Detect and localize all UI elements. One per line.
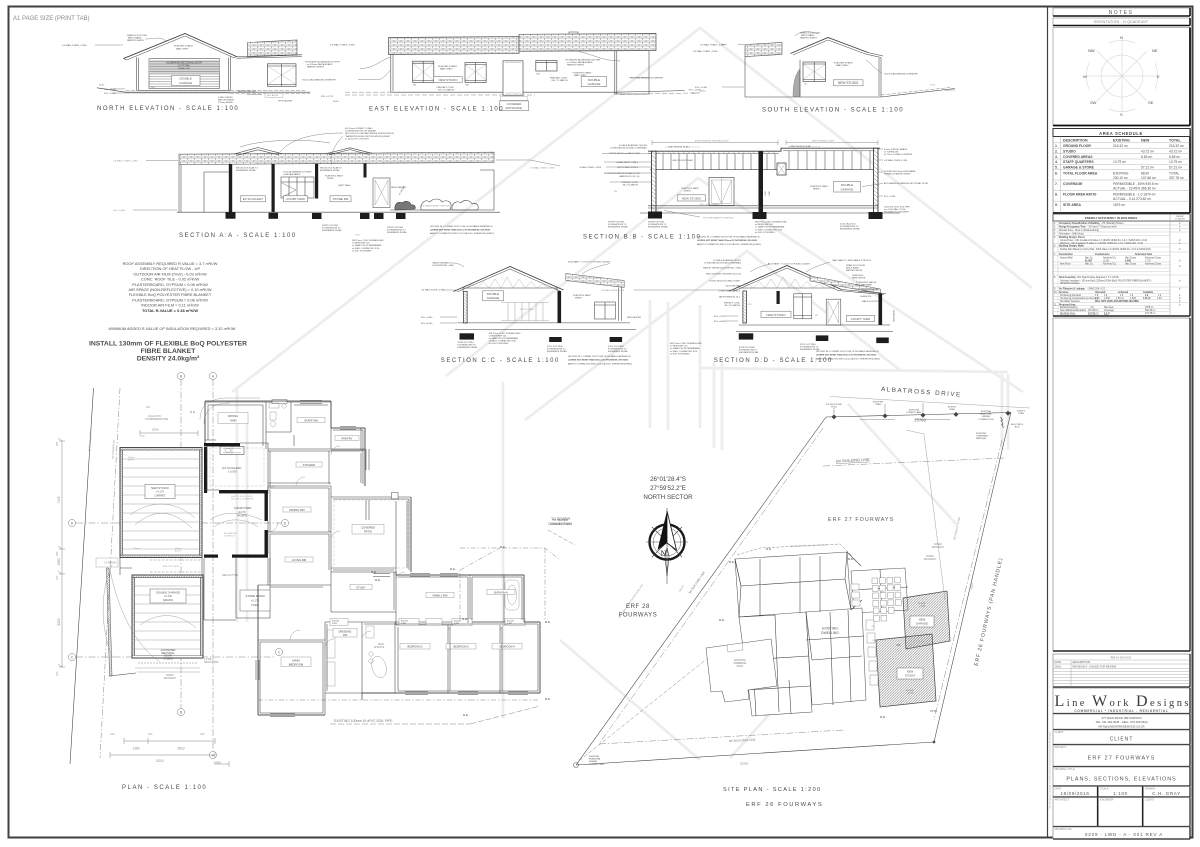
svg-text:6210: 6210 xyxy=(156,759,163,763)
svg-text:POOL: POOL xyxy=(737,665,744,668)
svg-text:17.6 LANDSCAPED CONTOUR: 17.6 LANDSCAPED CONTOUR xyxy=(420,205,450,208)
svg-text:1879 m²: 1879 m² xyxy=(1113,203,1126,207)
svg-text:F.F.L +0.170: F.F.L +0.170 xyxy=(714,316,726,318)
svg-text:FOUNDATIONS TO: FOUNDATIONS TO xyxy=(387,229,406,232)
svg-text:Achieved Cu: Achieved Cu xyxy=(1103,263,1117,266)
svg-text:220: 220 xyxy=(110,732,115,736)
svg-text:BRICK BAND: BRICK BAND xyxy=(846,267,859,270)
svg-text:Available: Available xyxy=(1143,291,1154,294)
svg-text:273.78 m²: 273.78 m² xyxy=(1145,312,1156,315)
svg-text:13.79 m²: 13.79 m² xyxy=(1169,160,1183,164)
svg-text:PATIO: PATIO xyxy=(364,530,373,534)
svg-text:FOURWAYS: FOURWAYS xyxy=(619,613,658,619)
svg-text:DRAWING NO.: DRAWING NO. xyxy=(1055,827,1073,831)
svg-text:PROJECT: PROJECT xyxy=(1055,745,1068,749)
svg-text:YARD: YARD xyxy=(229,418,236,422)
svg-text:- 16 Hours / 7 Days per week: - 16 Hours / 7 Days per week xyxy=(1087,226,1118,229)
svg-text:SITE AREA: SITE AREA xyxy=(1063,203,1082,207)
svg-text:RECYCLED TO IMPLANT/SMOKE SPEC: RECYCLED TO IMPLANT/SMOKE SPECIFICATION xyxy=(345,132,394,135)
svg-text:min I-1/40 FALL TO BE: min I-1/40 FALL TO BE xyxy=(884,208,906,211)
svg-text:C.H. GRAY: C.H. GRAY xyxy=(1152,791,1181,796)
svg-text:Hot Energy Consumption per Ann: Hot Energy Consumption per Annum xyxy=(1060,297,1097,300)
svg-text:ENGINEERS DETAIL: ENGINEERS DETAIL xyxy=(236,169,257,172)
svg-text:on 228mm FACIA BOARD: on 228mm FACIA BOARD xyxy=(567,61,593,64)
svg-text:ENGINEERS DETAIL: ENGINEERS DETAIL xyxy=(322,229,343,232)
svg-text:PERMISSIBLE - 50% 939.5 m²: PERMISSIBLE - 50% 939.5 m² xyxy=(1113,182,1159,186)
svg-text:Max Cu: Max Cu xyxy=(1085,264,1094,266)
svg-text:EXISTING: EXISTING xyxy=(822,627,838,631)
svg-text:(1.35): (1.35) xyxy=(1103,261,1109,263)
svg-text:CHARCOAL: CHARCOAL xyxy=(178,67,191,70)
svg-text:RIB 75mm CONC SURFACE BED: RIB 75mm CONC SURFACE BED xyxy=(670,342,702,345)
svg-text:EXIST'G CARS: EXIST'G CARS xyxy=(520,308,534,311)
svg-text:DATE: DATE xyxy=(1055,660,1062,664)
svg-text:43.72 m²: 43.72 m² xyxy=(1141,149,1155,153)
svg-text:PAINTED WHITE: PAINTED WHITE xyxy=(567,64,585,67)
svg-text:ERF 27 FOURWAYS: ERF 27 FOURWAYS xyxy=(828,517,894,523)
svg-text:DENSITY 24.0kg/m²: DENSITY 24.0kg/m² xyxy=(137,356,200,363)
svg-text:ENCASED IN CONCRETE: ENCASED IN CONCRETE xyxy=(884,211,910,214)
svg-text:1879 m²: 1879 m² xyxy=(1145,306,1154,309)
svg-text:280: 280 xyxy=(55,551,59,556)
svg-text:PLASTER & PAINT: PLASTER & PAINT xyxy=(174,45,194,48)
svg-text:R.E.: R.E. xyxy=(450,567,456,571)
svg-text:- Min Total R-Value Required =: - Min Total R-Value Required = 3.7 m²K/W xyxy=(1076,276,1120,279)
svg-text:REVISIONS: REVISIONS xyxy=(1111,656,1132,660)
svg-text:W: W xyxy=(1083,74,1087,79)
svg-text:ENGINEERS DETAIL: ENGINEERS DETAIL xyxy=(608,350,629,353)
svg-text:EXTRUDED ALUMINIUM GUTTER: EXTRUDED ALUMINIUM GUTTER xyxy=(305,61,340,64)
svg-text:ORIENTATION - N QUADRANT: ORIENTATION - N QUADRANT xyxy=(1094,20,1149,24)
svg-text:EXISTING: EXISTING xyxy=(1113,139,1130,143)
svg-text:NEW GUTTER: NEW GUTTER xyxy=(222,574,238,577)
svg-text:SECTION C:C - SCALE 1:100: SECTION C:C - SCALE 1:100 xyxy=(441,358,560,364)
svg-text:Allocated: Allocated xyxy=(1095,291,1106,294)
svg-text:Hot Water Services: Hot Water Services xyxy=(1060,300,1081,303)
svg-text:STAFF QUARTERS: STAFF QUARTERS xyxy=(1063,160,1094,164)
svg-text:366.36 m²: 366.36 m² xyxy=(1145,309,1156,312)
svg-text:CLIENT: CLIENT xyxy=(1055,730,1065,734)
svg-text:STUDIO: STUDIO xyxy=(1063,149,1076,153)
svg-text:PAINTED WHITE: PAINTED WHITE xyxy=(307,66,325,69)
svg-text:L/S WALL PLATE +2.890: L/S WALL PLATE +2.890 xyxy=(530,167,555,170)
svg-text:DRIVEWAY: DRIVEWAY xyxy=(164,677,177,680)
svg-text:3.: 3. xyxy=(1055,155,1058,159)
svg-text:ENTRANCE: ENTRANCE xyxy=(506,106,523,110)
svg-text:N: N xyxy=(661,549,667,558)
svg-text:SILL TO MATCH: SILL TO MATCH xyxy=(551,79,568,82)
svg-text:ENGINEERS DETAIL: ENGINEERS DETAIL xyxy=(320,169,341,172)
svg-text:DRIVEWAY: DRIVEWAY xyxy=(924,558,937,561)
svg-text:FASILEY WEIGH (100 EXISTING +: FASILEY WEIGH (100 EXISTING + MIN) xyxy=(703,267,741,270)
svg-text:STORMWATER PIPE: STORMWATER PIPE xyxy=(145,418,168,421)
svg-text:BATH RM 4: BATH RM 4 xyxy=(494,591,508,594)
svg-text:TILTED 38x114mm WALL PLATE: TILTED 38x114mm WALL PLATE xyxy=(709,280,740,283)
svg-text:BRICK BAND: BRICK BAND xyxy=(128,37,142,40)
svg-text:SCALE: SCALE xyxy=(1100,787,1109,791)
svg-text:3715: 3715 xyxy=(930,709,937,713)
svg-text:R.E.: R.E. xyxy=(463,713,469,717)
svg-text:COURTYARD: COURTYARD xyxy=(286,197,306,201)
svg-text:GROUND FILL COMPACTION TO BE O: GROUND FILL COMPACTION TO BE OF SUITABLE… xyxy=(697,236,760,239)
svg-text:ALLS PAINT 'T' CLICK TOOF SUB: ALLS PAINT 'T' CLICK TOOF SUB & SQUIRT xyxy=(768,263,811,266)
svg-text:OVERHEAD: OVERHEAD xyxy=(976,435,989,438)
svg-text:WIND DUSTING TRUSSES (75x4.75): WIND DUSTING TRUSSES (75x4.75) xyxy=(706,274,741,276)
svg-text:NOTES: NOTES xyxy=(1109,10,1134,16)
svg-text:L/S WALL PLATE +2.890: L/S WALL PLATE +2.890 xyxy=(113,160,138,163)
svg-text:BABY GREY: BABY GREY xyxy=(440,68,453,71)
svg-text:DOUBLE GARAGE: DOUBLE GARAGE xyxy=(156,591,180,595)
svg-text:ERF 28: ERF 28 xyxy=(626,604,650,610)
svg-text:EXTRUDED ALUMINIUM GUTTER: EXTRUDED ALUMINIUM GUTTER xyxy=(566,58,601,61)
svg-text:DESCRIPTION: DESCRIPTION xyxy=(1073,660,1091,664)
svg-text:New Floor: New Floor xyxy=(1060,263,1071,266)
svg-text:52930: 52930 xyxy=(740,762,749,766)
svg-text:7145: 7145 xyxy=(57,496,61,503)
svg-text:27°59'52.2"E: 27°59'52.2"E xyxy=(650,485,686,492)
svg-text:STEEL GATES: STEEL GATES xyxy=(218,96,233,99)
svg-text:SILL TO MATCH: SILL TO MATCH xyxy=(623,184,639,187)
svg-text:MAILS & GUTTER: MAILS & GUTTER xyxy=(862,300,880,303)
svg-text:BUILT-IN CUPB...: BUILT-IN CUPB... xyxy=(163,566,181,568)
svg-text:STORE RM: STORE RM xyxy=(333,197,349,201)
svg-text:GARAGE: GARAGE xyxy=(916,622,928,626)
svg-text:NEW STUDIO: NEW STUDIO xyxy=(838,81,859,85)
svg-text:"WATERPROOFING CERTIFICATE REQ: "WATERPROOFING CERTIFICATE REQUIRED" xyxy=(345,135,391,138)
svg-text:57.21 m²: 57.21 m² xyxy=(1169,166,1183,170)
svg-text:EAST ELEVATION - SCALE 1:100: EAST ELEVATION - SCALE 1:100 xyxy=(369,107,504,113)
svg-text:BOX: BOX xyxy=(1015,427,1020,429)
svg-text:WHITE: WHITE xyxy=(575,298,582,300)
svg-text:Proposed Area: Proposed Area xyxy=(1059,303,1076,306)
svg-text:NEW DP&SB: NEW DP&SB xyxy=(204,661,219,664)
svg-text:NORTH SECTOR: NORTH SECTOR xyxy=(643,494,693,501)
svg-text:GUTTER & DOWNPIPE: GUTTER & DOWNPIPE xyxy=(231,499,254,501)
svg-text:on WELL COMPACTED SOIL: on WELL COMPACTED SOIL xyxy=(755,228,783,231)
svg-text:1.: 1. xyxy=(1055,144,1058,148)
svg-text:TREE: TREE xyxy=(1018,413,1024,415)
svg-text:on 50mm PVC OUTLETS: on 50mm PVC OUTLETS xyxy=(345,138,369,140)
svg-text:RIB 75mm CONC SURFACE BED: RIB 75mm CONC SURFACE BED xyxy=(489,332,521,335)
svg-text:NEW STUDIO: NEW STUDIO xyxy=(438,78,458,82)
svg-text:9.: 9. xyxy=(1055,203,1058,207)
svg-text:ALUMINIUM SECTIONAL DOOR: ALUMINIUM SECTIONAL DOOR xyxy=(166,61,202,64)
svg-text:AASHTO COMPACTED INFILL (150 D: AASHTO COMPACTED INFILL (150 DAG FILL WH… xyxy=(568,362,632,365)
svg-text:1.593: 1.593 xyxy=(1104,298,1110,300)
svg-text:L/S WALL PLATE +2.890: L/S WALL PLATE +2.890 xyxy=(62,44,87,47)
svg-text:SITE PLAN - SCALE 1:200: SITE PLAN - SCALE 1:200 xyxy=(723,787,822,793)
svg-text:Climatic Zone - Zone 2 (Johann: Climatic Zone - Zone 2 (Johannesburg) xyxy=(1059,229,1099,232)
svg-text:w/ 75mm COMES CORNICES: w/ 75mm COMES CORNICES xyxy=(884,154,913,156)
svg-text:50%: 50% xyxy=(1104,315,1109,317)
svg-text:TEL: 011 463-4048 - CELL:: TEL: 011 463-4048 - CELL: 079 493-9614 xyxy=(1095,720,1147,724)
svg-text:4.8: 4.8 xyxy=(896,643,901,647)
svg-text:RM: RM xyxy=(343,634,347,637)
svg-text:Services: Services xyxy=(1059,292,1069,294)
svg-text:337.78 m²: 337.78 m² xyxy=(1088,314,1099,317)
svg-text:6.: 6. xyxy=(1055,172,1058,176)
svg-text:FIBRE BLANKET: FIBRE BLANKET xyxy=(141,348,197,355)
svg-text:- H4 (Dwelling House): - H4 (Dwelling House) xyxy=(1101,223,1124,225)
svg-text:Building Design: Walls: Building Design: Walls xyxy=(1059,246,1085,248)
svg-text:CONNECTION: CONNECTION xyxy=(589,764,604,766)
svg-text:WH PLASTER: WH PLASTER xyxy=(278,100,293,103)
svg-text:F.F.L +2.175: F.F.L +2.175 xyxy=(321,96,334,98)
svg-text:F.F.L +0.000: F.F.L +0.000 xyxy=(104,93,117,95)
svg-text:Solar Heat Gain: Solar Heat Gain xyxy=(1135,253,1153,256)
svg-text:Total Floor Area: Total Floor Area xyxy=(1060,314,1077,317)
svg-text:175mm RISER: 175mm RISER xyxy=(218,102,233,104)
svg-text:75mm Ø ALUMINIUM DOWNPIPE: 75mm Ø ALUMINIUM DOWNPIPE xyxy=(629,77,663,80)
svg-text:WILL NOT HAVE AN EXISTING HEAT: WILL NOT HAVE AN EXISTING HEATING xyxy=(1095,300,1139,303)
svg-text:F.F.L +0.340: F.F.L +0.340 xyxy=(695,87,708,89)
svg-text:50mm GM GAP: 50mm GM GAP xyxy=(725,285,740,288)
svg-text:PERMISSIBLE - 1.0 1879 m²: PERMISSIBLE - 1.0 1879 m² xyxy=(1113,193,1156,197)
svg-text:DRAW SOLUTIONS: DRAW SOLUTIONS xyxy=(127,34,147,37)
svg-text:STREET LAMP: STREET LAMP xyxy=(906,411,922,414)
svg-text:EX SCULLERY: EX SCULLERY xyxy=(223,466,242,470)
svg-text:240: 240 xyxy=(146,406,151,409)
svg-text:NEW: NEW xyxy=(1141,139,1150,143)
svg-text:SILL THE BRAM: SILL THE BRAM xyxy=(856,284,872,287)
svg-text:STUDIO: STUDIO xyxy=(905,674,916,678)
svg-text:R.E.: R.E. xyxy=(719,618,725,622)
svg-text:NEW STUDIO: NEW STUDIO xyxy=(766,313,786,317)
svg-text:CARPET: CARPET xyxy=(154,493,166,497)
svg-text:N.G.L.: N.G.L. xyxy=(333,101,340,103)
svg-text:6210: 6210 xyxy=(57,618,61,625)
svg-text:BABY GREY: BABY GREY xyxy=(176,47,189,50)
svg-text:w/ INSULATION (SOUND & THERMAL: w/ INSULATION (SOUND & THERMAL) xyxy=(610,147,647,150)
svg-text:R.E.: R.E. xyxy=(545,620,551,624)
svg-text:1.737: 1.737 xyxy=(1145,261,1151,263)
svg-text:PLASTER & PAINT: PLASTER & PAINT xyxy=(573,294,592,297)
svg-text:S WALL PLATE +2.890: S WALL PLATE +2.890 xyxy=(580,166,602,169)
svg-text:107.68 m²: 107.68 m² xyxy=(1088,309,1099,312)
svg-text:TOTAL FLOOR AREA: TOTAL FLOOR AREA xyxy=(1063,172,1098,176)
svg-text:DRAWING TITLE: DRAWING TITLE xyxy=(1055,767,1075,771)
svg-text:NEW TRUSSES O-DRY: NEW TRUSSES O-DRY xyxy=(812,141,835,143)
svg-text:216.32 m²: 216.32 m² xyxy=(1169,144,1185,148)
svg-text:F.F.L +0.340 GRANO: F.F.L +0.340 GRANO xyxy=(700,203,720,206)
svg-text:Around Wall: Around Wall xyxy=(1060,257,1073,260)
svg-text:4X45 PAINT 'T' CLICK TOOF SUB: 4X45 PAINT 'T' CLICK TOOF SUB & SQUIRT xyxy=(568,261,611,264)
svg-text:SECTION B:B - SCALE 1:100: SECTION B:B - SCALE 1:100 xyxy=(583,235,701,241)
svg-text:Orientation - Wall Sector: Orientation - Wall Sector xyxy=(1059,233,1084,236)
svg-text:280: 280 xyxy=(55,441,59,446)
svg-text:- SANS 204, 4.2.1: - SANS 204, 4.2.1 xyxy=(1087,288,1106,291)
svg-text:(VERT WALL): (VERT WALL) xyxy=(338,184,351,187)
svg-text:1.59: 1.59 xyxy=(1157,298,1162,300)
svg-text:BABY GREY: BABY GREY xyxy=(574,74,587,77)
svg-text:2200: 2200 xyxy=(213,761,220,765)
svg-text:EXISTING 100mm Ø uPVC SOIL PIP: EXISTING 100mm Ø uPVC SOIL PIPE xyxy=(334,719,393,723)
svg-text:STAFF RM: STAFF RM xyxy=(304,418,318,422)
svg-text:DOWN PIPE: DOWN PIPE xyxy=(892,310,894,323)
svg-text:GRANO: GRANO xyxy=(163,598,174,602)
svg-text:DATE: DATE xyxy=(1055,787,1062,791)
svg-text:L/S WALL PLATE +2.890: L/S WALL PLATE +2.890 xyxy=(693,50,718,53)
svg-text:Achieved Cu: Achieved Cu xyxy=(1103,257,1117,260)
svg-text:SE: SE xyxy=(1148,100,1154,105)
svg-text:ENERGY EFFICIENCY IN BUILDINGS: ENERGY EFFICIENCY IN BUILDINGS xyxy=(1085,216,1137,220)
svg-text:LIVING RM: LIVING RM xyxy=(292,558,307,562)
svg-text:BEDROOM: BEDROOM xyxy=(289,662,304,666)
svg-text:REFINECES MIRROR & RAKE GOOD: REFINECES MIRROR & RAKE GOOD xyxy=(604,172,641,175)
svg-text:400 50mm SCREED TO FALL: 400 50mm SCREED TO FALL xyxy=(345,127,374,130)
svg-text:F.F.L +0.340: F.F.L +0.340 xyxy=(421,317,433,319)
svg-text:DRIVEWAY: DRIVEWAY xyxy=(932,546,945,549)
svg-text:Double Skin Masonry Cavity Wal: Double Skin Masonry Cavity Wall - Fill R… xyxy=(1060,248,1151,251)
svg-text:GARAGE & STORE: GARAGE & STORE xyxy=(1063,166,1095,170)
svg-text:N.G.L.: N.G.L. xyxy=(700,91,707,93)
svg-text:COMMERCIAL * INDUSTRIAL - RESI: COMMERCIAL * INDUSTRIAL - RESIDENTIAL xyxy=(1074,709,1168,713)
svg-text:Max Cmax: Max Cmax xyxy=(1125,264,1137,266)
svg-text:R.E.: R.E. xyxy=(848,557,854,561)
svg-text:1380: 1380 xyxy=(57,558,61,565)
svg-text:HEIGHTS: HEIGHTS xyxy=(944,89,955,92)
svg-text:ENGINEERS DETAIL: ENGINEERS DETAIL xyxy=(547,350,568,353)
svg-text:220: 220 xyxy=(148,732,153,736)
svg-text:ERF 26 FOURWAYS: ERF 26 FOURWAYS xyxy=(746,802,823,808)
svg-text:CONNECTION: CONNECTION xyxy=(979,419,994,421)
svg-text:KITCHEN: KITCHEN xyxy=(303,463,315,467)
svg-text:F.F.L +0.000: F.F.L +0.000 xyxy=(113,210,126,212)
svg-text:A.F.F.L.: A.F.F.L. xyxy=(128,459,135,462)
svg-text:SILL TO MATCH: SILL TO MATCH xyxy=(438,89,455,92)
svg-text:ACTUAL - 0.14 273.82 m²: ACTUAL - 0.14 273.82 m² xyxy=(1113,197,1152,201)
svg-text:R.E.: R.E. xyxy=(190,410,196,414)
svg-text:in FACIA BOARDS: in FACIA BOARDS xyxy=(283,173,301,176)
svg-text:L/S WALL PLATE +2.890: L/S WALL PLATE +2.890 xyxy=(421,289,445,292)
svg-text:MIN PLASTER: MIN PLASTER xyxy=(627,316,641,319)
svg-text:43.72 m²: 43.72 m² xyxy=(1169,149,1183,153)
svg-text:DWELLING: DWELLING xyxy=(821,631,839,635)
svg-text:COVERAGE: COVERAGE xyxy=(1063,182,1083,186)
svg-text:EXIST EXISTING TRUSSES U-DRY: EXIST EXISTING TRUSSES U-DRY xyxy=(695,141,729,143)
svg-text:57.21 m²: 57.21 m² xyxy=(1141,166,1155,170)
svg-text:Achieved Cmax: Achieved Cmax xyxy=(1145,257,1162,260)
svg-text:on DAMP PROOF MEMBRANE: on DAMP PROOF MEMBRANE xyxy=(352,244,382,247)
svg-text:STORE ROOM: STORE ROOM xyxy=(245,594,265,598)
svg-text:Achieved: Achieved xyxy=(1118,291,1129,294)
svg-text:TREE: TREE xyxy=(875,404,881,406)
svg-text:LINE OF EXIST SLAB: LINE OF EXIST SLAB xyxy=(672,159,693,162)
svg-text:50 PINE SW 0.6mm SUB-FRAME: 50 PINE SW 0.6mm SUB-FRAME xyxy=(884,170,916,173)
svg-text:NEW STUDIO: NEW STUDIO xyxy=(151,486,170,490)
svg-text:29/16: 29/16 xyxy=(1055,665,1062,669)
svg-text:R.E.: R.E. xyxy=(462,617,468,621)
svg-text:DINING RM: DINING RM xyxy=(290,508,306,512)
svg-text:WIRES(S): WIRES(S) xyxy=(976,438,986,440)
svg-text:LAYERS NOT MORE THAN 150mm IN: LAYERS NOT MORE THAN 150mm IN THICKNESS.… xyxy=(816,354,877,357)
svg-text:FOUNDATIONS TO: FOUNDATIONS TO xyxy=(547,348,566,351)
svg-text:FLOOR AREA RATIO: FLOOR AREA RATIO xyxy=(1063,193,1097,197)
svg-text:L/S WALL PLATE +2.890: L/S WALL PLATE +2.890 xyxy=(884,159,908,162)
svg-text:SILL THE BRAM: SILL THE BRAM xyxy=(858,291,874,294)
svg-text:L/S WALL PLATE +2.890: L/S WALL PLATE +2.890 xyxy=(330,43,355,46)
svg-text:1.59 m²: 1.59 m² xyxy=(1116,297,1124,300)
svg-text:FOUNDATIONS TO: FOUNDATIONS TO xyxy=(739,349,758,352)
svg-text:F.F.L ±0.000: F.F.L ±0.000 xyxy=(714,321,726,323)
svg-text:POLYURETHANE FLOORETTA...: POLYURETHANE FLOORETTA... xyxy=(703,217,735,220)
svg-text:COURT YARD: COURT YARD xyxy=(851,317,871,321)
svg-text:WHITE: WHITE xyxy=(813,189,820,191)
svg-text:6.65 m²: 6.65 m² xyxy=(1169,155,1181,159)
svg-text:DRESSING: DRESSING xyxy=(338,630,351,633)
svg-text:CLOSE UP: CLOSE UP xyxy=(224,536,235,538)
svg-text:+0.240: +0.240 xyxy=(919,605,926,607)
svg-text:BEDROOM 2: BEDROOM 2 xyxy=(407,646,423,649)
svg-text:Building Design: Floors: Building Design: Floors xyxy=(1059,237,1086,239)
svg-text:R.E.: R.E. xyxy=(545,697,551,701)
svg-text:POLE: POLE xyxy=(831,407,837,409)
svg-text:S: S xyxy=(1120,112,1123,117)
svg-text:5290: 5290 xyxy=(152,428,159,432)
svg-text:75mm Ø ALUMINIUM DOWNPIPE: 75mm Ø ALUMINIUM DOWNPIPE xyxy=(884,73,918,76)
svg-text:PAINTED WHITE: PAINTED WHITE xyxy=(800,37,818,40)
svg-text:DRAWN: DRAWN xyxy=(1145,787,1155,791)
svg-text:SILL ALUM.: SILL ALUM. xyxy=(267,94,279,97)
svg-text:Coverage: Coverage xyxy=(1104,309,1115,312)
svg-text:220: 220 xyxy=(55,671,59,676)
svg-text:DOUBLE BOARDED CEILING: DOUBLE BOARDED CEILING xyxy=(619,144,648,147)
svg-text:11.: 11. xyxy=(1054,304,1057,306)
svg-text:± 0.000: ± 0.000 xyxy=(228,470,237,474)
svg-text:TREE: TREE xyxy=(949,409,955,411)
svg-text:PAVERS: PAVERS xyxy=(237,514,247,518)
svg-text:75mm Ø ALUMINIUM DOWNPIPE: 75mm Ø ALUMINIUM DOWNPIPE xyxy=(302,79,336,82)
svg-text:GARAGE: GARAGE xyxy=(179,81,192,85)
svg-text:2.5%: 2.5% xyxy=(355,235,360,237)
svg-text:R.E.: R.E. xyxy=(880,715,886,719)
svg-text:CONNECTION: CONNECTION xyxy=(550,522,570,526)
svg-text:3910: 3910 xyxy=(177,747,184,751)
svg-text:ENGINEERS DETAIL: ENGINEERS DETAIL xyxy=(458,346,479,349)
svg-text:(100 EXISTING + MIN): (100 EXISTING + MIN) xyxy=(433,265,455,267)
svg-text:SILL TO MATCH: SILL TO MATCH xyxy=(725,304,741,307)
svg-text:on DAMP PROOF MEMBRANE: on DAMP PROOF MEMBRANE xyxy=(489,337,519,340)
svg-text:7.: 7. xyxy=(1055,182,1058,186)
svg-text:REVISION A - ISSUED FOR REVI: REVISION A - ISSUED FOR REVIEW xyxy=(1073,665,1117,669)
svg-text:Max Cu: Max Cu xyxy=(1085,258,1094,260)
svg-text:AASHTO COMPACTED INFILL (150 D: AASHTO COMPACTED INFILL (150 DAG FILL WH… xyxy=(430,232,494,235)
svg-text:1380: 1380 xyxy=(132,747,139,751)
svg-text:N.G.L.: N.G.L. xyxy=(930,85,937,87)
svg-text:(OPTIONAL): (OPTIONAL) xyxy=(178,64,191,67)
svg-text:8.: 8. xyxy=(1055,193,1058,197)
svg-text:w/ SOIL POISONING: w/ SOIL POISONING xyxy=(670,353,690,355)
svg-text:PLASTER &: PLASTER & xyxy=(852,274,864,277)
svg-text:COURTYARD: COURTYARD xyxy=(234,506,251,510)
svg-text:1:100: 1:100 xyxy=(1113,791,1128,796)
svg-text:ARCHITECT: ARCHITECT xyxy=(1055,798,1070,802)
svg-text:R.E.: R.E. xyxy=(500,545,506,549)
svg-text:1.98: 1.98 xyxy=(1095,298,1100,300)
svg-text:on WELL COMPACTED SOIL: on WELL COMPACTED SOIL xyxy=(352,247,380,250)
svg-text:Max Cmax: Max Cmax xyxy=(1125,258,1137,260)
svg-text:Occupancy Classification of Bu: Occupancy Classification of Building xyxy=(1059,222,1100,225)
svg-text:TOTAL: TOTAL xyxy=(1169,172,1179,176)
svg-text:25 SA FIRST GAUGE: 25 SA FIRST GAUGE xyxy=(858,288,879,291)
svg-text:LAYERS NOT MORE THAN 150mm IN: LAYERS NOT MORE THAN 150mm IN THICKNESS.… xyxy=(568,359,629,362)
svg-text:4.: 4. xyxy=(1055,160,1058,164)
svg-text:Existing Dwelling: Existing Dwelling xyxy=(1060,306,1078,309)
svg-text:MUNICIPAL: MUNICIPAL xyxy=(980,413,993,416)
svg-text:PLASTER & PAINT: PLASTER & PAINT xyxy=(573,72,593,75)
svg-text:Hot Energy Demand: Hot Energy Demand xyxy=(1060,294,1082,297)
svg-text:on WELL COMPACTED SOIL: on WELL COMPACTED SOIL xyxy=(489,340,517,343)
